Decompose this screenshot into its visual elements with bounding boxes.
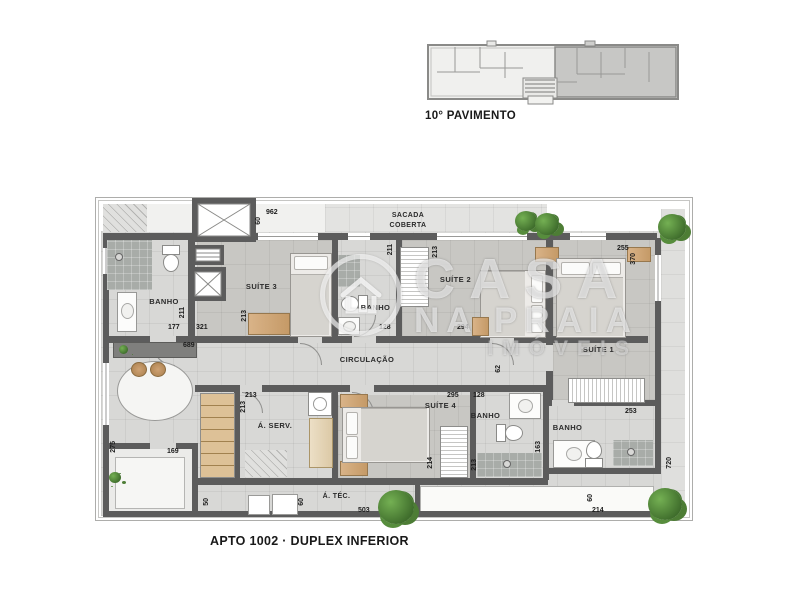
toilet-banho3 — [496, 426, 522, 442]
stairs — [200, 393, 235, 478]
plant-atec — [378, 490, 414, 524]
door-aserv — [240, 385, 262, 392]
toilet-banho4 — [587, 442, 603, 468]
dim-689: 689 — [183, 342, 195, 349]
plant-sacada-a — [515, 211, 537, 231]
wardrobe-suite1 — [568, 378, 645, 403]
dim-177: 177 — [168, 324, 180, 331]
nightstand-suite4-b — [340, 461, 368, 476]
door-banho2 — [352, 336, 376, 343]
dim-370: 370 — [630, 253, 637, 265]
plant-sacada-b — [535, 213, 559, 235]
label-banho1: BANHO — [143, 297, 185, 306]
window-suite3 — [258, 233, 318, 240]
wall-banho4-bottom — [545, 468, 658, 474]
label-aserv: Á. SERV. — [245, 421, 305, 430]
stairs-void-hatch — [245, 450, 287, 477]
dim-503: 503 — [358, 507, 370, 514]
label-banho2: BANHO — [353, 303, 398, 312]
sink-banho1 — [117, 292, 137, 332]
shower-banho1 — [107, 240, 152, 290]
main-floorplan: SACADA COBERTA BANHO SUÍTE 3 BANHO SUÍTE… — [95, 195, 695, 525]
wall-recess-left — [415, 483, 420, 516]
dim-213-banho3: 213 — [471, 459, 478, 471]
dim-213-aserv-h: 213 — [245, 392, 257, 399]
floorplan-page: { "header": { "key_plan_label": "10° PAV… — [0, 0, 800, 600]
dim-294: 294 — [457, 324, 469, 331]
ac-unit-b — [272, 494, 298, 515]
bed-suite1 — [556, 258, 626, 338]
plant-sideboard — [119, 345, 128, 354]
wall-banho3-right — [543, 390, 549, 480]
label-sacada-line1: SACADA — [392, 212, 424, 219]
counter-aserv — [309, 418, 333, 468]
plant-lower-terrace — [109, 472, 121, 483]
door-suite1-sacada — [570, 233, 606, 240]
dim-128-banho3: 128 — [473, 392, 485, 399]
key-plan-label: 10° PAVIMENTO — [425, 110, 516, 122]
plant-terrace-top — [658, 214, 686, 240]
bed-suite4 — [342, 407, 430, 463]
dim-213-suite3: 213 — [241, 310, 248, 322]
wall-lower-terrace-right — [192, 443, 198, 517]
apartment-title: APTO 1002 · DUPLEX INFERIOR — [210, 534, 409, 548]
bed-suite3 — [290, 253, 332, 337]
dim-62: 62 — [495, 365, 502, 373]
window-banho2 — [348, 233, 370, 240]
shower-banho2 — [338, 255, 360, 287]
dim-255: 255 — [617, 245, 629, 252]
key-plan-drawing — [425, 38, 683, 106]
label-suite2: SUÍTE 2 — [428, 275, 483, 284]
sink-banho2 — [338, 317, 360, 335]
label-suite4: SUÍTE 4 — [413, 401, 468, 410]
dim-60-atec: 60 — [298, 498, 305, 506]
key-plan: 10° PAVIMENTO — [425, 38, 683, 106]
wall-rooms-bottom — [195, 478, 548, 485]
dim-211-banho2: 211 — [387, 244, 394, 255]
wardrobe-suite2 — [400, 247, 429, 307]
dim-128-banho2: 128 — [379, 324, 391, 331]
ac-unit-a — [248, 495, 270, 515]
drain-banho3 — [503, 460, 511, 468]
dim-163: 163 — [535, 441, 542, 453]
dim-253: 253 — [625, 408, 637, 415]
hatch-top-left — [103, 204, 147, 232]
label-sacada-line2: COBERTA — [390, 222, 427, 229]
wardrobe-suite4 — [440, 426, 468, 478]
label-sacada: SACADA COBERTA — [377, 211, 439, 231]
dim-211-banho1: 211 — [179, 307, 186, 318]
stool-b — [150, 362, 166, 377]
nightstand-suite4-a — [340, 394, 368, 408]
window-dining-left — [103, 363, 109, 425]
door-suite4 — [350, 385, 374, 392]
floor-lower-terrace-inner — [115, 457, 185, 509]
plant-terrace-bottom — [648, 488, 682, 520]
toilet-banho1 — [162, 245, 178, 271]
label-banho4: BANHO — [540, 423, 595, 432]
dim-213-suite2: 213 — [432, 246, 439, 258]
label-atec: Á. TÉC. — [309, 493, 364, 500]
dim-169: 169 — [167, 448, 179, 455]
dim-213-aserv-v: 213 — [240, 401, 247, 413]
dim-720: 720 — [666, 457, 673, 469]
window-suite2 — [437, 233, 527, 240]
label-suite3: SUÍTE 3 — [234, 282, 289, 291]
bed-suite2 — [480, 270, 546, 338]
dim-50: 50 — [203, 498, 210, 506]
window-suite1-right — [655, 255, 661, 301]
label-suite1: SUÍTE 1 — [571, 345, 626, 354]
dim-295: 295 — [447, 392, 459, 399]
label-circulacao: CIRCULAÇÃO — [317, 355, 417, 364]
label-banho3: BANHO — [463, 411, 508, 420]
dim-214-right: 214 — [592, 507, 604, 514]
sink-banho3 — [509, 393, 541, 419]
stool-a — [131, 362, 147, 377]
drain-banho4 — [627, 448, 635, 456]
dim-60-top: 60 — [255, 217, 262, 225]
door-suite3 — [298, 336, 322, 343]
dim-321: 321 — [196, 324, 208, 331]
dim-962: 962 — [266, 209, 278, 216]
door-suite1 — [546, 345, 553, 371]
dim-275: 275 — [110, 441, 117, 453]
dim-60-right: 60 — [587, 494, 594, 502]
nightstand-suite2-b — [472, 317, 489, 336]
bench-suite3 — [248, 313, 290, 335]
shower-head-banho1 — [115, 253, 123, 261]
washing-machine — [308, 392, 332, 416]
floor-right-terrace — [661, 209, 685, 515]
dim-214-suite4: 214 — [427, 457, 434, 469]
